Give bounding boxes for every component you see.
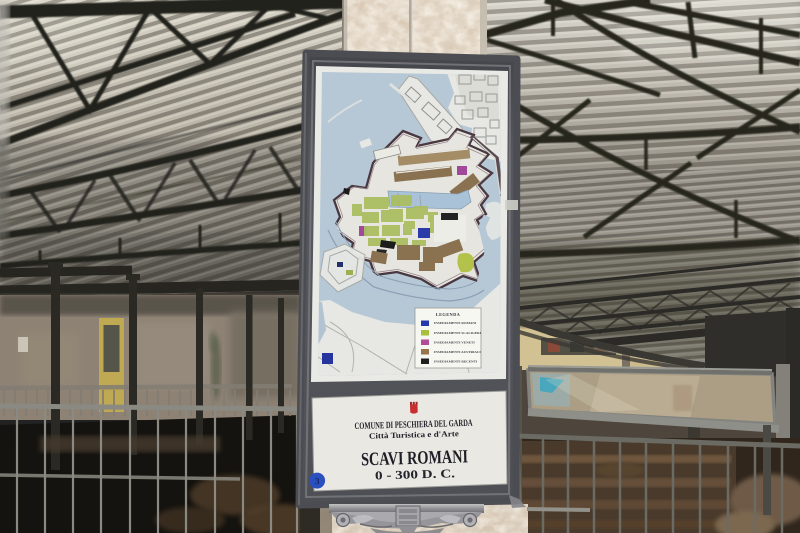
svg-text:INSEDIAMENTI ROMANI: INSEDIAMENTI ROMANI xyxy=(434,321,477,325)
svg-text:3: 3 xyxy=(315,476,320,486)
svg-text:LEGENDA: LEGENDA xyxy=(436,312,461,317)
svg-text:0 - 300 D. C.: 0 - 300 D. C. xyxy=(375,466,455,482)
svg-text:INSEDIAMENTI SCALIGERI: INSEDIAMENTI SCALIGERI xyxy=(434,331,482,335)
svg-text:INSEDIAMENTI AUSTRIACI: INSEDIAMENTI AUSTRIACI xyxy=(434,350,481,354)
svg-text:INSEDIAMENTI RECENTI: INSEDIAMENTI RECENTI xyxy=(434,360,478,364)
svg-text:INSEDIAMENTI VENETI: INSEDIAMENTI VENETI xyxy=(434,341,475,345)
